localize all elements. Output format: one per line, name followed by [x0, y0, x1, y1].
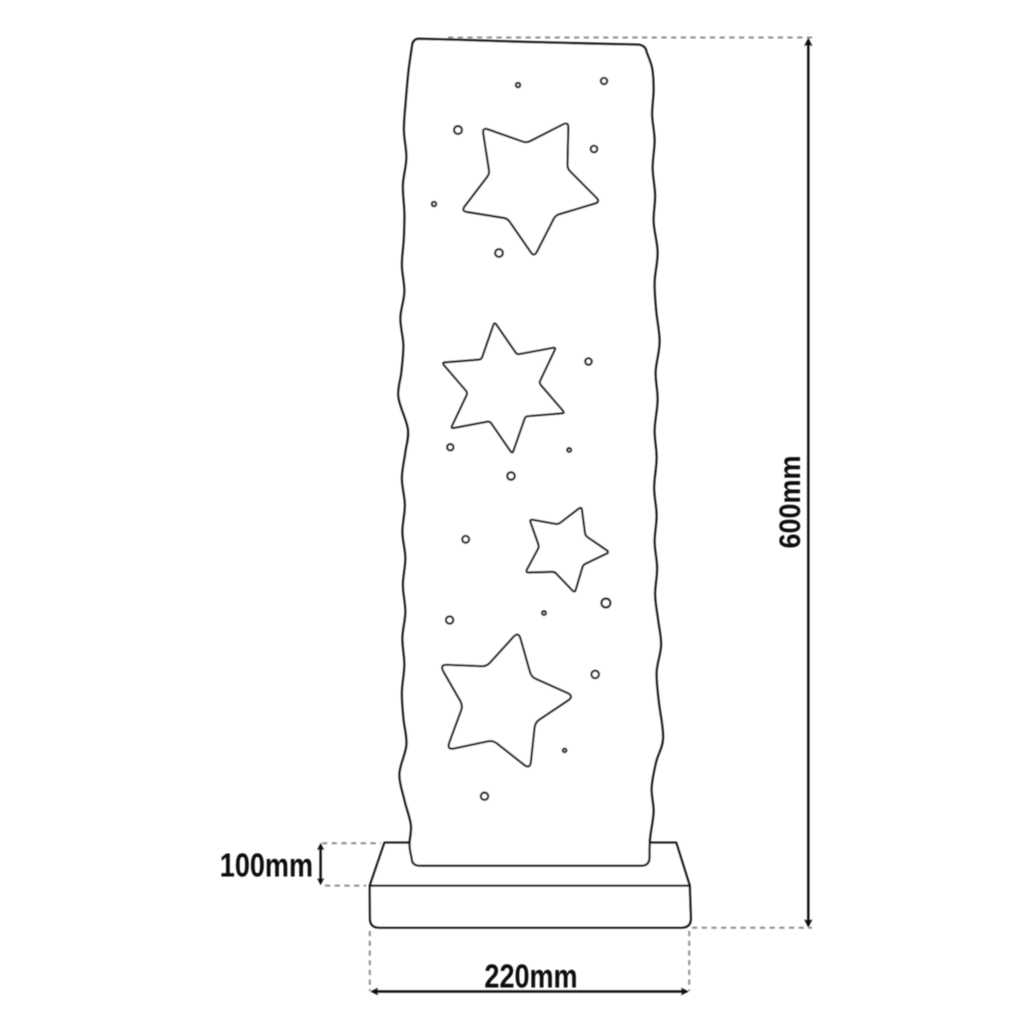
- svg-text:100mm: 100mm: [220, 848, 313, 884]
- svg-text:600mm: 600mm: [774, 456, 808, 549]
- svg-text:220mm: 220mm: [484, 959, 577, 995]
